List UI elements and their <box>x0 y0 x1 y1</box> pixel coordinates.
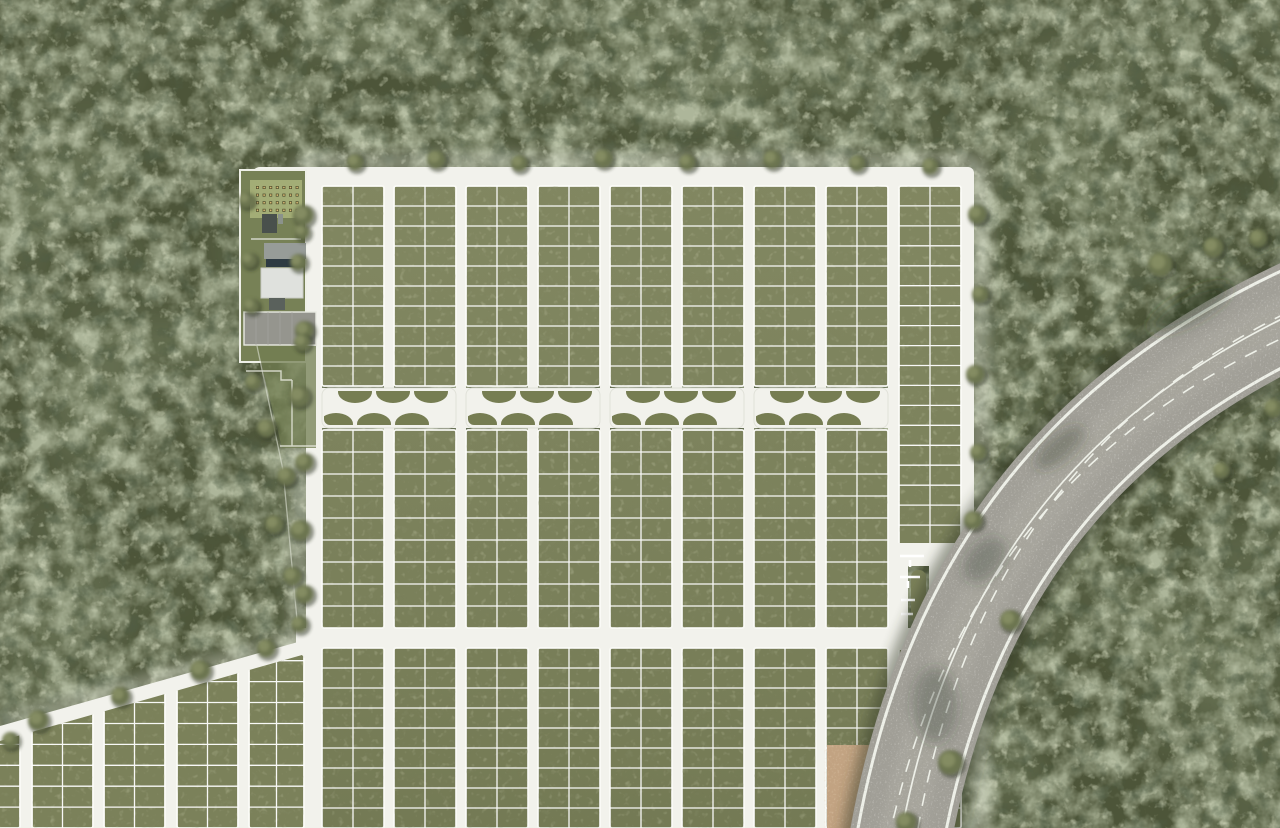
highway <box>830 220 1280 828</box>
pergola-wing <box>278 214 283 224</box>
pergola-roof <box>262 214 277 233</box>
vertical-street <box>528 186 538 828</box>
clubhouse-entry-roof <box>269 298 285 310</box>
vertical-street <box>816 186 826 828</box>
vertical-street <box>672 186 682 828</box>
asphalt-texture <box>830 220 1280 828</box>
vertical-street <box>600 186 610 828</box>
vertical-street <box>744 186 754 828</box>
aerial-site-plan: Aerial master-plan render of a forested … <box>0 0 1280 828</box>
vertical-street <box>384 186 394 828</box>
vertical-street <box>456 186 466 828</box>
